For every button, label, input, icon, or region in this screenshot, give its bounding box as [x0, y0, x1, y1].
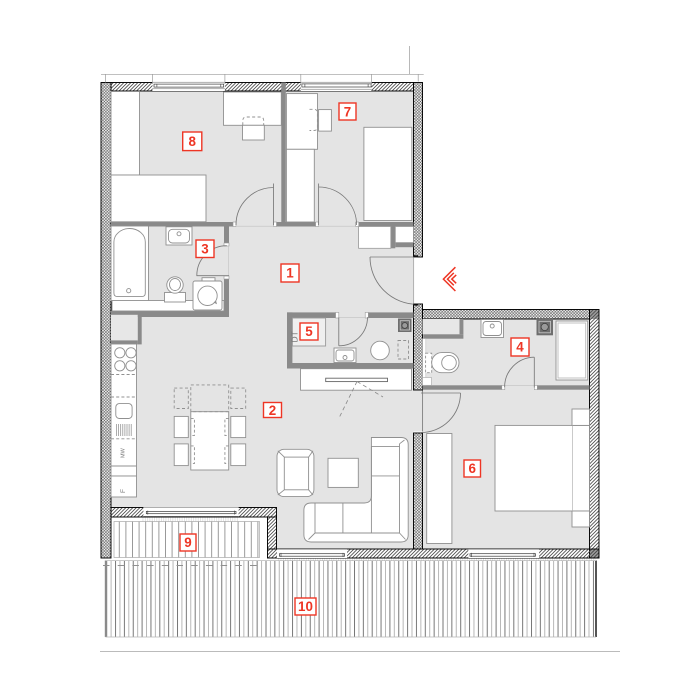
svg-text:1: 1: [286, 266, 294, 281]
svg-text:6: 6: [468, 461, 475, 476]
svg-text:7: 7: [344, 104, 351, 119]
svg-text:F: F: [120, 489, 127, 493]
svg-text:10: 10: [298, 599, 313, 614]
svg-text:3: 3: [201, 241, 208, 256]
svg-text:4: 4: [516, 340, 524, 355]
svg-text:9: 9: [184, 535, 191, 550]
svg-text:2: 2: [269, 403, 276, 418]
svg-text:5: 5: [305, 324, 313, 339]
svg-text:8: 8: [188, 134, 196, 149]
svg-text:MW: MW: [121, 447, 127, 458]
svg-text:DT: DT: [290, 331, 300, 342]
